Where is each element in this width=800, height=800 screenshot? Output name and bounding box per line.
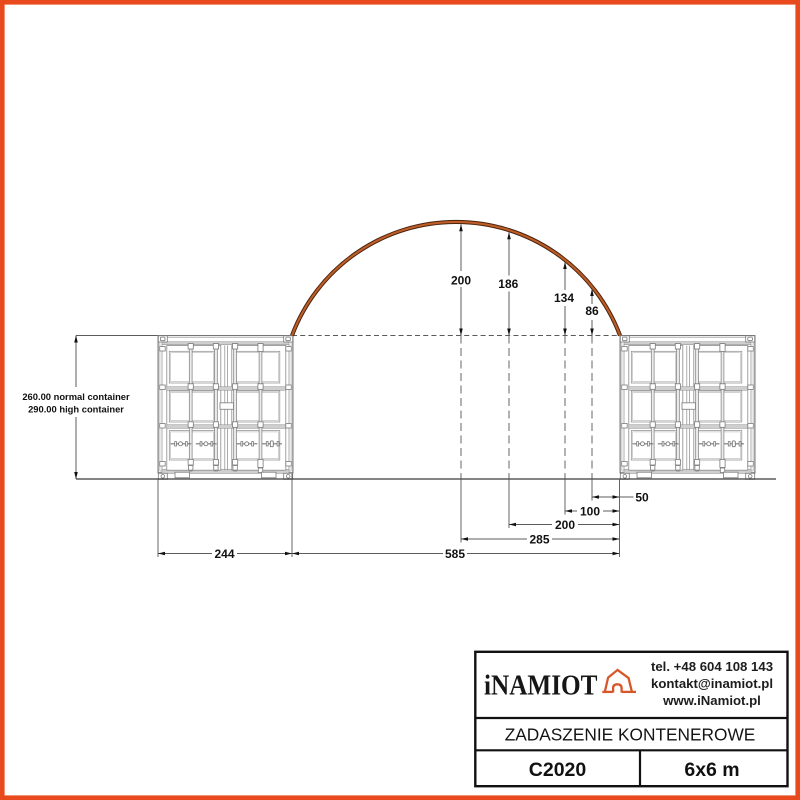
svg-text:tel. +48 604 108 143: tel. +48 604 108 143 xyxy=(651,659,773,674)
svg-text:www.iNamiot.pl: www.iNamiot.pl xyxy=(662,693,761,708)
svg-text:C2020: C2020 xyxy=(529,759,587,781)
svg-text:134: 134 xyxy=(554,291,574,305)
svg-text:585: 585 xyxy=(445,547,465,561)
svg-text:6x6 m: 6x6 m xyxy=(684,759,739,781)
svg-text:kontakt@inamiot.pl: kontakt@inamiot.pl xyxy=(651,676,773,691)
svg-text:186: 186 xyxy=(498,277,518,291)
svg-text:200: 200 xyxy=(451,273,471,287)
svg-text:200: 200 xyxy=(555,518,575,532)
svg-text:iNAMIOT: iNAMIOT xyxy=(484,671,598,702)
svg-text:285: 285 xyxy=(529,533,549,547)
svg-text:100: 100 xyxy=(580,505,600,519)
svg-text:ZADASZENIE KONTENEROWE: ZADASZENIE KONTENEROWE xyxy=(505,725,756,745)
svg-text:244: 244 xyxy=(214,547,234,561)
svg-text:260.00 normal container: 260.00 normal container xyxy=(22,391,130,402)
svg-text:50: 50 xyxy=(635,491,649,505)
svg-text:290.00 high container: 290.00 high container xyxy=(28,404,124,415)
svg-text:86: 86 xyxy=(585,304,599,318)
